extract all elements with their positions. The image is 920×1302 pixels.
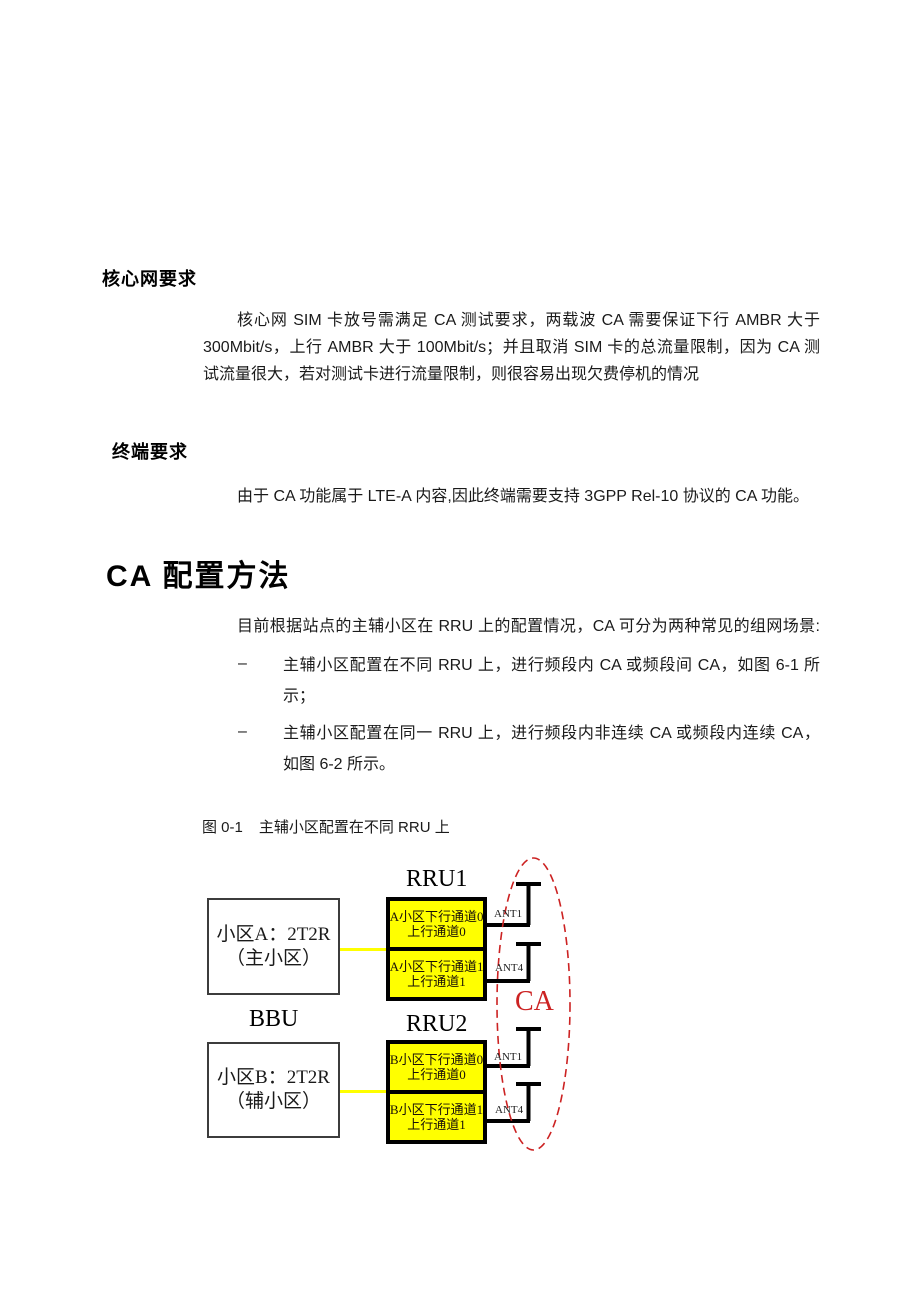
channel-line1: A小区下行通道1 <box>390 959 484 974</box>
paragraph-line: 目前根据站点的主辅小区在 RRU 上的配置情况，CA 可分为两种常见的组网场景: <box>203 613 820 640</box>
rru1-channel-1: A小区下行通道1 上行通道1 <box>390 951 483 997</box>
ca-label: CA <box>515 986 554 1018</box>
channel-line2: 上行通道1 <box>407 974 466 989</box>
document-page: 核心网要求 核心网 SIM 卡放号需满足 CA 测试要求，两载波 CA 需要保证… <box>0 0 920 1302</box>
ant-label-rru2-1: ANT1 <box>494 1051 522 1063</box>
rru2-channel-0: B小区下行通道0 上行通道0 <box>390 1044 483 1090</box>
bullet-dash: – <box>238 656 247 672</box>
bullet-line: 如图 6-2 所示。 <box>283 749 820 780</box>
cell-a-box: 小区A：2T2R （主小区） <box>207 898 340 995</box>
channel-line1: A小区下行通道0 <box>390 909 484 924</box>
channel-line2: 上行通道0 <box>407 1067 466 1082</box>
figure-caption: 图 0-1主辅小区配置在不同 RRU 上 <box>202 816 450 837</box>
cell-a-line1: 小区A：2T2R <box>216 923 330 947</box>
rru2-channel-stack: B小区下行通道0 上行通道0 B小区下行通道1 上行通道1 <box>386 1040 487 1144</box>
paragraph-ca-intro: 目前根据站点的主辅小区在 RRU 上的配置情况，CA 可分为两种常见的组网场景: <box>203 613 820 640</box>
heading-core-network: 核心网要求 <box>102 265 197 291</box>
cell-b-box: 小区B：2T2R （辅小区） <box>207 1042 340 1138</box>
paragraph-line: 由于 CA 功能属于 LTE-A 内容,因此终端需要支持 3GPP Rel-10… <box>203 483 820 510</box>
rru1-channel-0: A小区下行通道0 上行通道0 <box>390 901 483 947</box>
paragraph-core-network: 核心网 SIM 卡放号需满足 CA 测试要求，两载波 CA 需要保证下行 AMB… <box>203 307 820 388</box>
rru1-channel-stack: A小区下行通道0 上行通道0 A小区下行通道1 上行通道1 <box>386 897 487 1001</box>
bullet-line: 示； <box>283 681 820 712</box>
channel-line1: B小区下行通道1 <box>390 1102 483 1117</box>
paragraph-line: 300Mbit/s，上行 AMBR 大于 100Mbit/s；并且取消 SIM … <box>203 334 820 361</box>
ant-label-rru1-4: ANT4 <box>495 962 523 974</box>
heading-terminal: 终端要求 <box>112 438 188 464</box>
bullet-line: 主辅小区配置在不同 RRU 上，进行频段内 CA 或频段间 CA，如图 6-1 … <box>283 650 820 681</box>
ant-label-rru2-4: ANT4 <box>495 1104 523 1116</box>
channel-line2: 上行通道1 <box>407 1117 466 1132</box>
paragraph-line: 试流量很大，若对测试卡进行流量限制，则很容易出现欠费停机的情况 <box>203 361 820 388</box>
bullet-item-2: 主辅小区配置在同一 RRU 上，进行频段内非连续 CA 或频段内连续 CA， 如… <box>283 718 820 780</box>
figure-caption-number: 图 0-1 <box>202 819 243 836</box>
bullet-dash: – <box>238 724 247 740</box>
paragraph-line: 核心网 SIM 卡放号需满足 CA 测试要求，两载波 CA 需要保证下行 AMB… <box>203 307 820 334</box>
figure-caption-text: 主辅小区配置在不同 RRU 上 <box>259 819 450 836</box>
bullet-item-1: 主辅小区配置在不同 RRU 上，进行频段内 CA 或频段间 CA，如图 6-1 … <box>283 650 820 712</box>
heading-ca-config: CA 配置方法 <box>106 551 291 595</box>
ant-label-rru1-1: ANT1 <box>494 908 522 920</box>
bbu-label: BBU <box>249 1006 298 1033</box>
bullet-line: 主辅小区配置在同一 RRU 上，进行频段内非连续 CA 或频段内连续 CA， <box>283 718 820 749</box>
paragraph-terminal: 由于 CA 功能属于 LTE-A 内容,因此终端需要支持 3GPP Rel-10… <box>203 483 820 510</box>
cell-a-line2: （主小区） <box>226 947 321 971</box>
rru2-channel-1: B小区下行通道1 上行通道1 <box>390 1094 483 1140</box>
cell-b-line2: （辅小区） <box>226 1090 321 1114</box>
rru1-label: RRU1 <box>406 866 467 893</box>
channel-line1: B小区下行通道0 <box>390 1052 483 1067</box>
rru2-label: RRU2 <box>406 1011 467 1038</box>
channel-line2: 上行通道0 <box>407 924 466 939</box>
cell-b-line1: 小区B：2T2R <box>217 1066 330 1090</box>
